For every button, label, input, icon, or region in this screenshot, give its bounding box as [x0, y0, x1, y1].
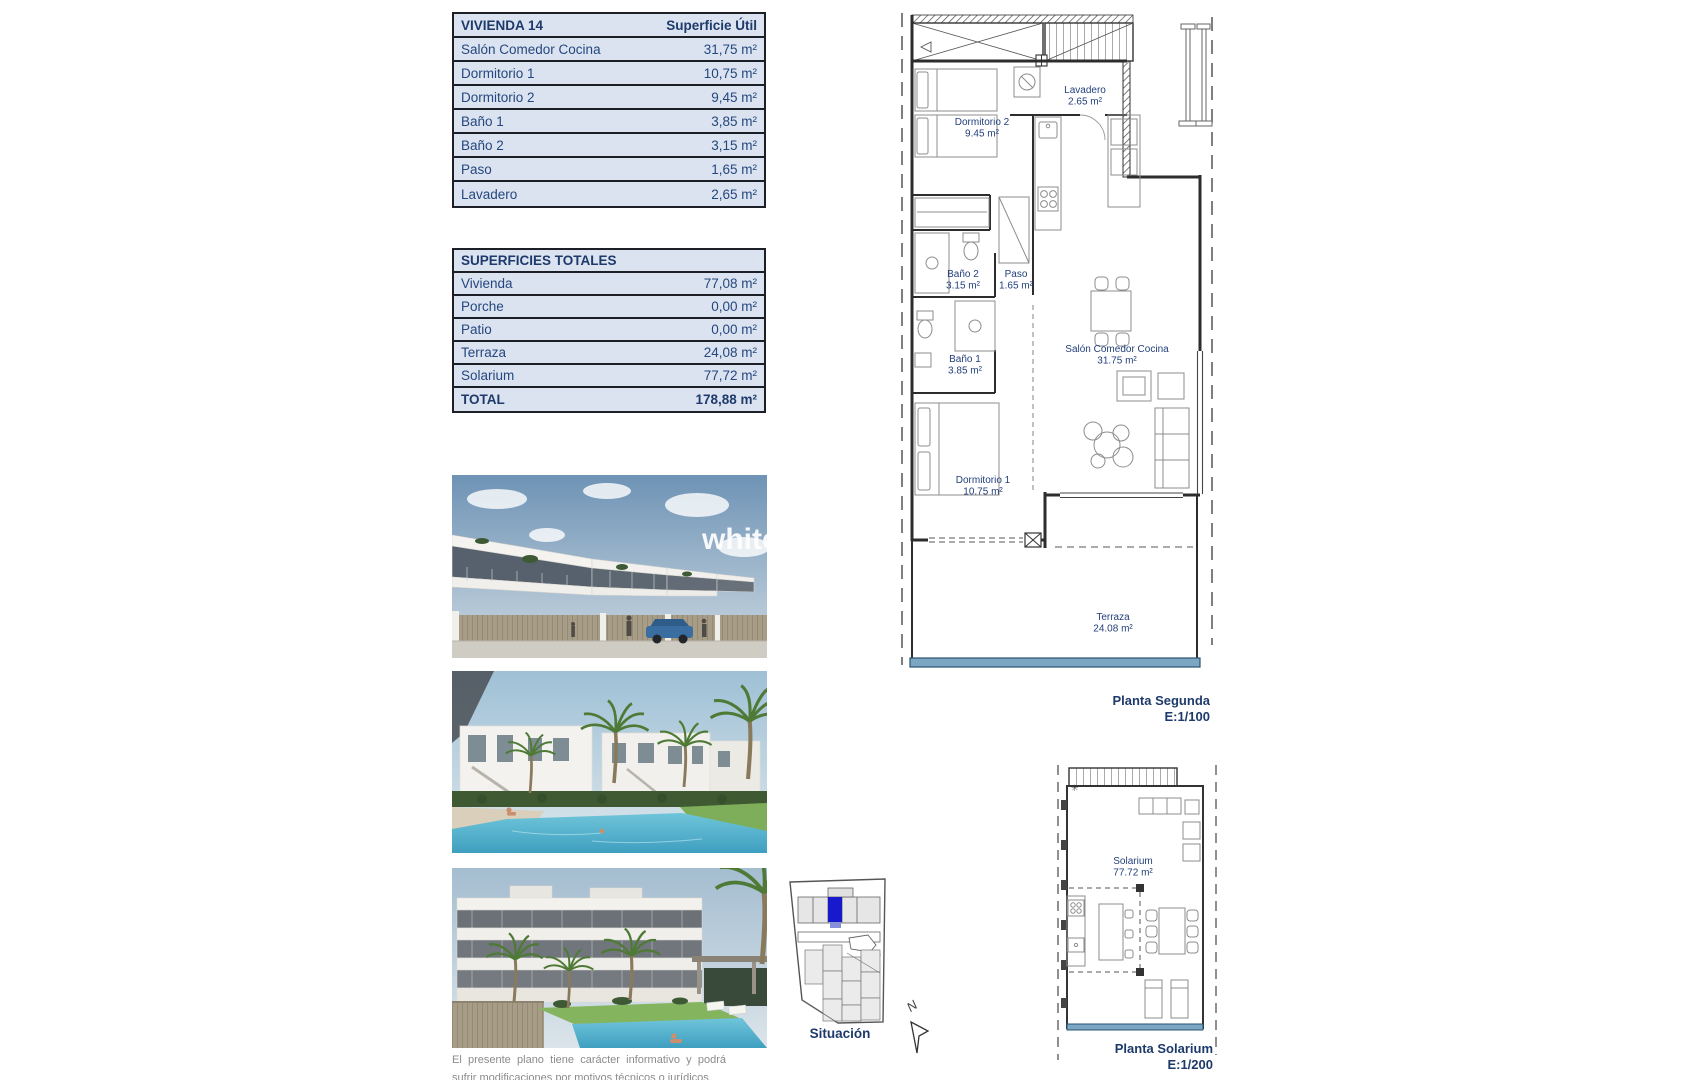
watermark-text: white: [701, 523, 767, 556]
room-label: Dormitorio 1: [461, 66, 535, 81]
room-area: 24.08 m²: [1093, 624, 1133, 635]
table-total-row: TOTAL178,88 m²: [454, 388, 764, 411]
total-label: Solarium: [461, 368, 514, 383]
room-name: Baño 1: [949, 354, 981, 365]
table-header-row: SUPERFICIES TOTALES: [454, 250, 764, 273]
table-row: Dormitorio 29,45 m²: [454, 86, 764, 110]
table-row: Solarium77,72 m²: [454, 365, 764, 388]
room-name: Terraza: [1096, 612, 1130, 623]
table-row: Patio0,00 m²: [454, 319, 764, 342]
table-title: SUPERFICIES TOTALES: [461, 253, 617, 268]
table-row: Porche0,00 m²: [454, 296, 764, 319]
room-area: 77.72 m²: [1113, 868, 1153, 879]
room-label: Salón Comedor Cocina: [461, 42, 601, 57]
room-value: 3,85 m²: [711, 114, 757, 129]
disclaimer-text: El presente plano tiene carácter informa…: [452, 1051, 726, 1080]
room-name: Salón Comedor Cocina: [1065, 344, 1169, 355]
room-label: Lavadero: [461, 187, 517, 202]
table-row: Baño 23,15 m²: [454, 134, 764, 158]
north-arrow: N: [904, 997, 928, 1053]
room-value: 1,65 m²: [711, 162, 757, 177]
plan-scale: E:1/100: [1164, 709, 1210, 724]
floor-plan-solarium: ✳ Solarium: [1055, 760, 1220, 1075]
room-name: Baño 2: [947, 269, 979, 280]
pool-render-illustration: [452, 671, 767, 853]
room-name: Lavadero: [1064, 85, 1106, 96]
room-label: Baño 2: [461, 138, 504, 153]
table-row: Salón Comedor Cocina31,75 m²: [454, 38, 764, 62]
floor-plan-segunda: Dormitorio 2 9.45 m² Lavadero 2.65 m² Ba…: [895, 5, 1225, 735]
column-header: Superficie Útil: [666, 18, 757, 33]
total-label: Vivienda: [461, 276, 513, 291]
site-plan: N: [785, 875, 950, 1075]
render-photo-street: white: [452, 475, 767, 658]
street-render-illustration: white: [452, 475, 767, 658]
plan-caption: Planta Segunda: [1112, 693, 1210, 708]
total-label: Terraza: [461, 345, 506, 360]
room-value: 2,65 m²: [711, 187, 757, 202]
room-name: Paso: [1005, 269, 1028, 280]
north-label: N: [904, 997, 921, 1015]
total-value: 0,00 m²: [711, 322, 757, 337]
solarium-glass-parapet: [1067, 1024, 1203, 1030]
room-name: Dormitorio 1: [956, 475, 1011, 486]
total-label: TOTAL: [461, 392, 505, 407]
render-photo-pool: [452, 671, 767, 853]
table-header-row: VIVIENDA 14 Superficie Útil: [454, 14, 764, 38]
room-area: 31.75 m²: [1097, 356, 1137, 367]
table-row: Lavadero2,65 m²: [454, 182, 764, 206]
total-value: 77,08 m²: [704, 276, 757, 291]
table-title: VIVIENDA 14: [461, 18, 543, 33]
total-value: 77,72 m²: [704, 368, 757, 383]
unit-areas-table: VIVIENDA 14 Superficie Útil Salón Comedo…: [452, 12, 766, 208]
plan-caption: Planta Solarium: [1115, 1041, 1213, 1056]
room-value: 10,75 m²: [704, 66, 757, 81]
room-area: 2.65 m²: [1068, 97, 1103, 108]
plan-scale: E:1/200: [1167, 1057, 1213, 1072]
room-label: Baño 1: [461, 114, 504, 129]
total-value: 0,00 m²: [711, 299, 757, 314]
room-area: 9.45 m²: [965, 129, 1000, 140]
room-area: 3.85 m²: [948, 366, 983, 377]
total-label: Porche: [461, 299, 504, 314]
room-value: 3,15 m²: [711, 138, 757, 153]
room-label: Paso: [461, 162, 492, 177]
room-value: 31,75 m²: [704, 42, 757, 57]
room-area: 10.75 m²: [963, 487, 1003, 498]
totals-table: SUPERFICIES TOTALES Vivienda77,08 m² Por…: [452, 248, 766, 413]
room-label: Dormitorio 2: [461, 90, 535, 105]
highlighted-unit: [828, 897, 842, 922]
total-label: Patio: [461, 322, 492, 337]
table-row: Baño 13,85 m²: [454, 110, 764, 134]
table-row: Dormitorio 110,75 m²: [454, 62, 764, 86]
total-value: 24,08 m²: [704, 345, 757, 360]
room-area: 1.65 m²: [999, 281, 1034, 292]
room-area: 3.15 m²: [946, 281, 981, 292]
table-row: Vivienda77,08 m²: [454, 273, 764, 296]
room-name: Dormitorio 2: [955, 117, 1010, 128]
room-value: 9,45 m²: [711, 90, 757, 105]
room-name: Solarium: [1113, 856, 1152, 867]
terrace-glass-parapet: [910, 658, 1200, 667]
site-plan-label: Situación: [785, 1026, 895, 1041]
render-photo-aerial: [452, 868, 767, 1048]
aerial-render-illustration: [452, 868, 767, 1048]
table-row: Terraza24,08 m²: [454, 342, 764, 365]
total-value: 178,88 m²: [695, 392, 757, 407]
plan-sheet: VIVIENDA 14 Superficie Útil Salón Comedo…: [0, 0, 1700, 1080]
table-row: Paso1,65 m²: [454, 158, 764, 182]
